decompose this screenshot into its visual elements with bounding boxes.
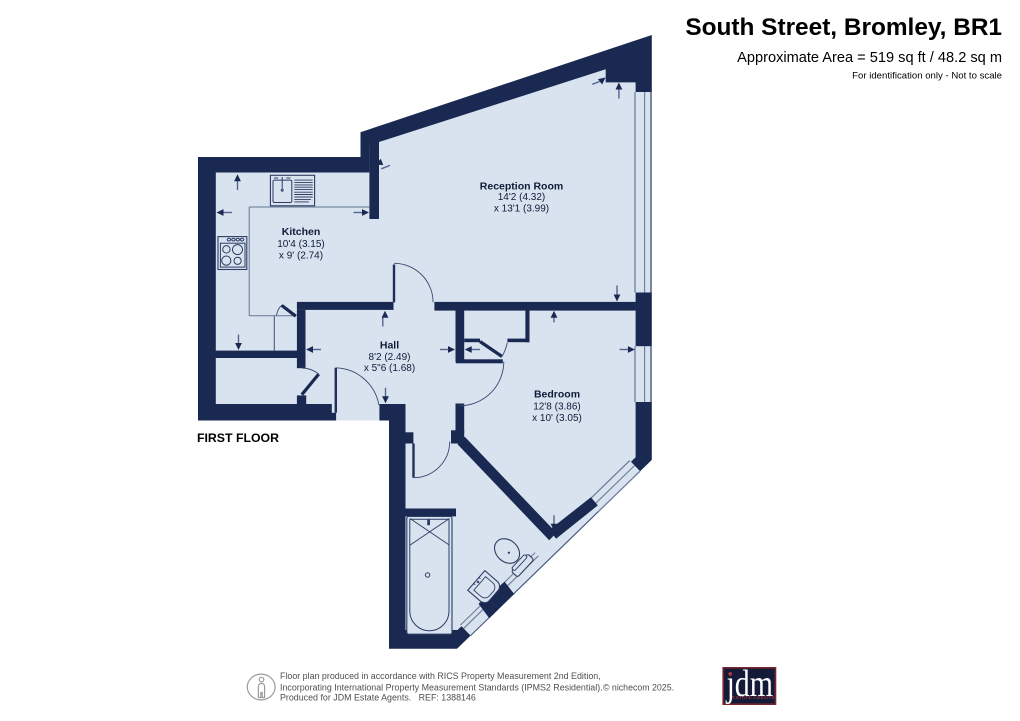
svg-text:Incorporating International Pr: Incorporating International Property Mea… (280, 682, 603, 692)
svg-text:8'2 (2.49): 8'2 (2.49) (369, 352, 411, 363)
svg-text:© nichecom 2025.: © nichecom 2025. (603, 682, 674, 692)
svg-text:x 9' (2.74): x 9' (2.74) (279, 251, 323, 262)
svg-text:x 13'1 (3.99): x 13'1 (3.99) (494, 204, 549, 215)
svg-text:10'4 (3.15): 10'4 (3.15) (277, 239, 325, 250)
svg-text:Kitchen: Kitchen (282, 226, 321, 238)
svg-text:For identification only - Not: For identification only - Not to scale (852, 71, 1002, 82)
svg-text:South Street, Bromley, BR1: South Street, Bromley, BR1 (685, 14, 1002, 41)
svg-text:Bedroom: Bedroom (534, 389, 580, 401)
svg-text:FIRST FLOOR: FIRST FLOOR (197, 431, 279, 445)
svg-text:Hall: Hall (380, 340, 399, 352)
svg-text:ESTATE AGENTS: ESTATE AGENTS (732, 695, 775, 701)
svg-text:Produced for JDM Estate Agents: Produced for JDM Estate Agents. REF: 138… (280, 693, 476, 703)
svg-text:14'2 (4.32): 14'2 (4.32) (498, 192, 546, 203)
svg-text:Floor plan produced in accorda: Floor plan produced in accordance with R… (280, 671, 601, 681)
svg-text:12'8 (3.86): 12'8 (3.86) (533, 402, 581, 413)
svg-text:x 10' (3.05): x 10' (3.05) (532, 413, 582, 424)
svg-text:x 5"6 (1.68): x 5"6 (1.68) (364, 363, 415, 374)
svg-text:Reception Room: Reception Room (480, 181, 563, 193)
svg-text:Approximate Area = 519 sq ft /: Approximate Area = 519 sq ft / 48.2 sq m (737, 50, 1002, 66)
